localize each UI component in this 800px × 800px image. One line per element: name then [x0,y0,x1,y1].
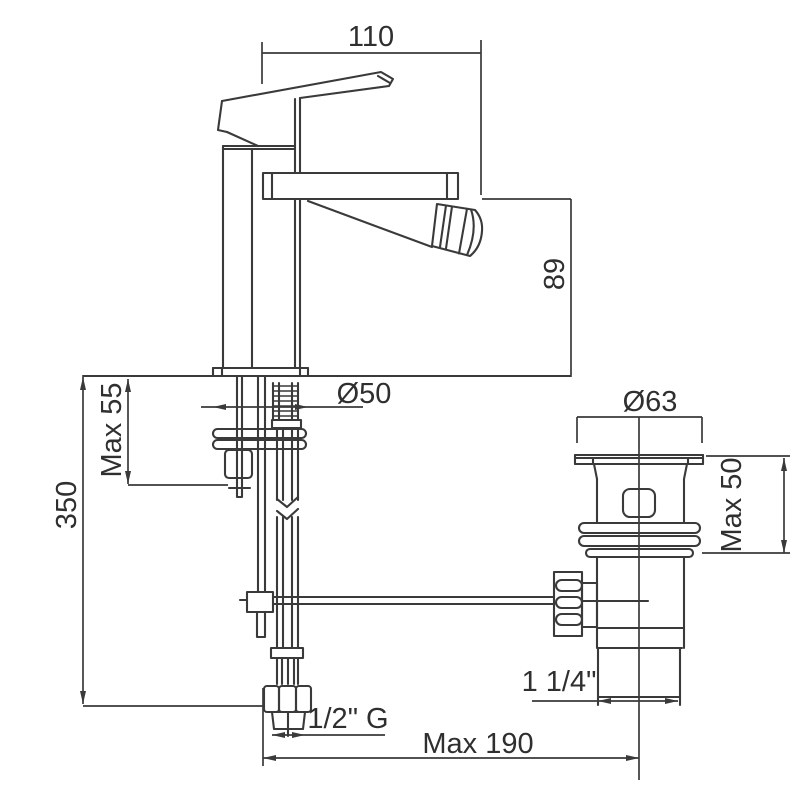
dim-label-max190: Max 190 [422,728,533,760]
dim-waste-max-50: Max 50 [702,456,790,553]
under-deck-mounting [213,376,311,736]
hose-braid-strands [277,658,298,684]
dim-label-max55: Max 55 [96,382,128,477]
dim-base-diameter-50: Ø50 [201,378,391,410]
dim-tailpiece-1-1-4: 1 1/4" [522,666,678,704]
faucet-body-column [223,146,295,368]
dim-label-d63: Ø63 [623,386,678,418]
mounting-nut [225,450,252,478]
popup-linkage-rod [273,597,554,604]
rod-bracket [582,583,597,627]
aerator-nozzle [432,204,482,256]
hose-break-symbol [277,497,298,519]
dim-label-110: 110 [348,21,394,53]
popup-waste-assembly [554,417,703,780]
faucet-spout-arm [263,173,458,247]
dim-label-d50: Ø50 [337,378,392,410]
dim-label-1-1-4: 1 1/4" [522,666,597,698]
technical-drawing-canvas: 110 89 Ø50 Max 55 350 Ø63 Max 50 1 1/4 [0,0,800,800]
waste-tailpiece [597,628,684,705]
supply-hex-nut [264,686,311,736]
base-escutcheon-plate [213,368,308,376]
dim-spout-height-89: 89 [482,199,571,375]
dim-hose-350: 350 [51,377,264,706]
dim-label-1-2-g: 1/2" G [307,703,388,735]
dim-supply-thread-1-2-g: 1/2" G [272,703,389,738]
bidet-mixer-dimension-drawing: 110 89 Ø50 Max 55 350 Ø63 Max 50 1 1/4 [0,0,800,800]
waste-lower-body [582,557,684,628]
dim-max-55: Max 55 [96,379,228,485]
dim-label-max50: Max 50 [716,457,748,552]
waste-upper-body [597,479,684,523]
rod-clamp-knob [554,572,582,636]
faucet-lever-handle [218,72,393,368]
faucet-mixer [213,72,482,376]
dim-label-89: 89 [539,258,571,290]
dim-label-350: 350 [51,481,83,529]
popup-rod-vertical [240,376,273,637]
